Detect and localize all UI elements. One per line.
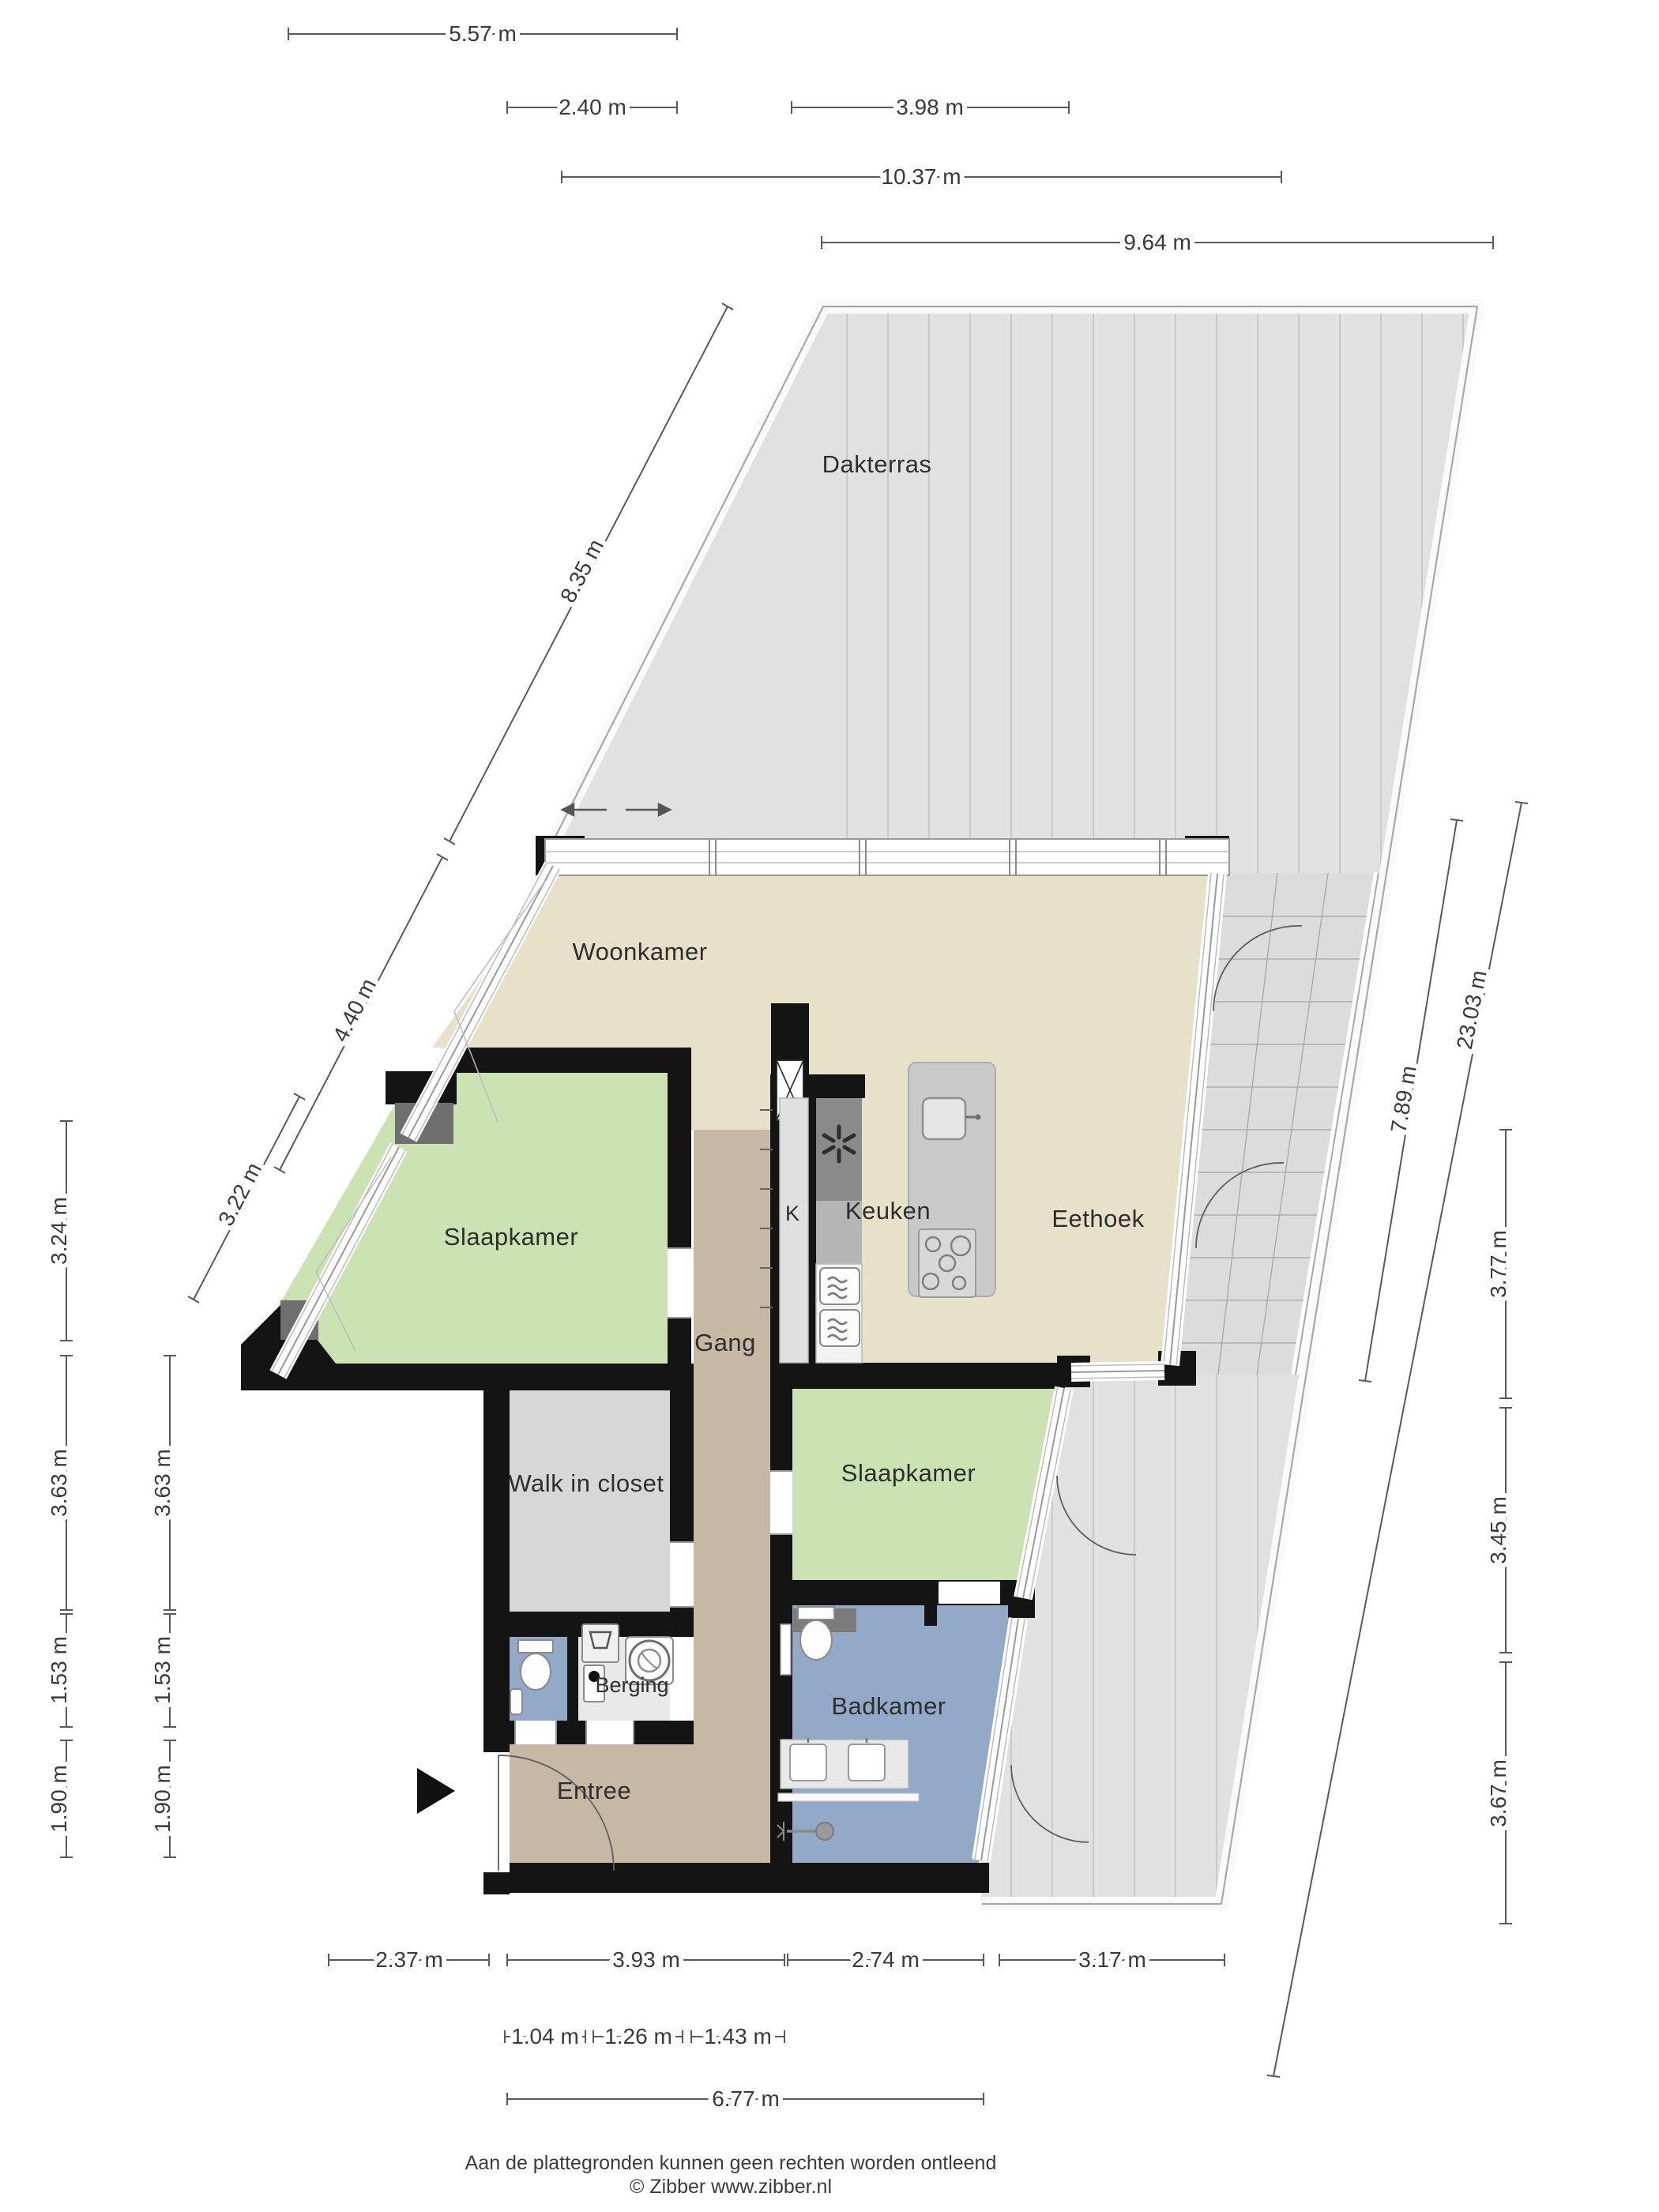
dim-right-diagonal-1: 7.89 m xyxy=(1386,1064,1420,1134)
dim-right-3: 3.67 m xyxy=(1486,1759,1510,1827)
toilet-tank-2 xyxy=(798,1607,834,1619)
footer-copyright: © Zibber www.zibber.nl xyxy=(630,2176,832,2198)
dim-left-outer-4: 1.90 m xyxy=(47,1765,71,1833)
room-label-kast: K xyxy=(785,1202,799,1225)
room-label-walk-in-closet: Walk in closet xyxy=(508,1469,664,1497)
south-window-band-dining xyxy=(1071,1364,1164,1379)
room-label-entree: Entree xyxy=(557,1777,631,1804)
dim-left-inner-2: 1.53 m xyxy=(150,1636,175,1704)
boiler-icon xyxy=(582,1624,619,1662)
dim-bottom-5: 1.04 m xyxy=(511,2024,579,2048)
toilet-tank xyxy=(518,1640,553,1653)
dim-bottom-total: 6.77 m xyxy=(712,2086,780,2111)
dim-bottom-3: 2.74 m xyxy=(852,1947,920,1972)
floor-plan: Dakterras xyxy=(0,0,1659,2212)
oven-icon-2 xyxy=(820,1310,860,1346)
dim-left-outer-3: 1.53 m xyxy=(47,1636,71,1704)
stove-icon xyxy=(919,1229,976,1297)
room-label-badkamer: Badkamer xyxy=(831,1692,946,1720)
north-window-band xyxy=(545,839,1229,875)
dim-left-inner-1: 3.63 m xyxy=(150,1449,175,1517)
room-label-woonkamer: Woonkamer xyxy=(572,938,707,965)
dim-left-diagonal-3: 3.22 m xyxy=(213,1158,266,1229)
dim-bottom-6: 1.26 m xyxy=(604,2024,672,2048)
room-label-dakterras: Dakterras xyxy=(822,450,932,478)
room-label-berging: Berging xyxy=(595,1673,668,1697)
room-label-eethoek: Eethoek xyxy=(1051,1205,1144,1232)
oven-icon xyxy=(820,1268,860,1304)
floor-walk-in-closet xyxy=(510,1390,670,1612)
dim-bottom-2: 3.93 m xyxy=(612,1947,680,1972)
dim-left-inner-3: 1.90 m xyxy=(150,1765,175,1833)
dim-bottom-1: 2.37 m xyxy=(375,1947,443,1972)
kitchen-island xyxy=(908,1063,995,1297)
dim-left-diagonal-1: 8.35 m xyxy=(555,535,608,606)
dim-top-2: 2.40 m xyxy=(559,95,626,119)
dim-top-3: 3.98 m xyxy=(896,95,964,119)
toilet-icon-2 xyxy=(800,1620,832,1660)
floor-bedroom-left xyxy=(261,1073,668,1364)
dim-right-diagonal-2: 23.03 m xyxy=(1452,969,1492,1051)
room-label-gang: Gang xyxy=(694,1329,756,1356)
dim-bottom-4: 3.17 m xyxy=(1078,1947,1146,1972)
room-label-keuken: Keuken xyxy=(845,1197,931,1224)
floor-bedroom-right xyxy=(792,1389,1059,1601)
room-label-slaapkamer-links: Slaapkamer xyxy=(444,1223,578,1251)
toilet-icon xyxy=(521,1653,551,1690)
partition xyxy=(781,1624,791,1675)
dim-top-1: 5.57 m xyxy=(449,21,517,46)
dim-right-2: 3.45 m xyxy=(1486,1496,1510,1564)
dim-left-diagonal-2: 4.40 m xyxy=(328,974,381,1045)
dim-left-outer-1: 3.24 m xyxy=(47,1197,71,1265)
dim-top-4: 10.37 m xyxy=(881,164,961,189)
dim-right-1: 3.77 m xyxy=(1486,1230,1510,1298)
room-label-slaapkamer-rechts: Slaapkamer xyxy=(841,1459,976,1487)
footer-disclaimer: Aan de plattegronden kunnen geen rechten… xyxy=(465,2152,997,2174)
entrance-arrow-icon xyxy=(417,1768,455,1814)
small-sink-icon xyxy=(510,1689,522,1714)
dim-left-outer-2: 3.63 m xyxy=(47,1449,71,1517)
footer: Aan de plattegronden kunnen geen rechten… xyxy=(465,2152,997,2198)
dim-bottom-7: 1.43 m xyxy=(704,2024,772,2048)
dim-top-5: 9.64 m xyxy=(1123,230,1191,254)
